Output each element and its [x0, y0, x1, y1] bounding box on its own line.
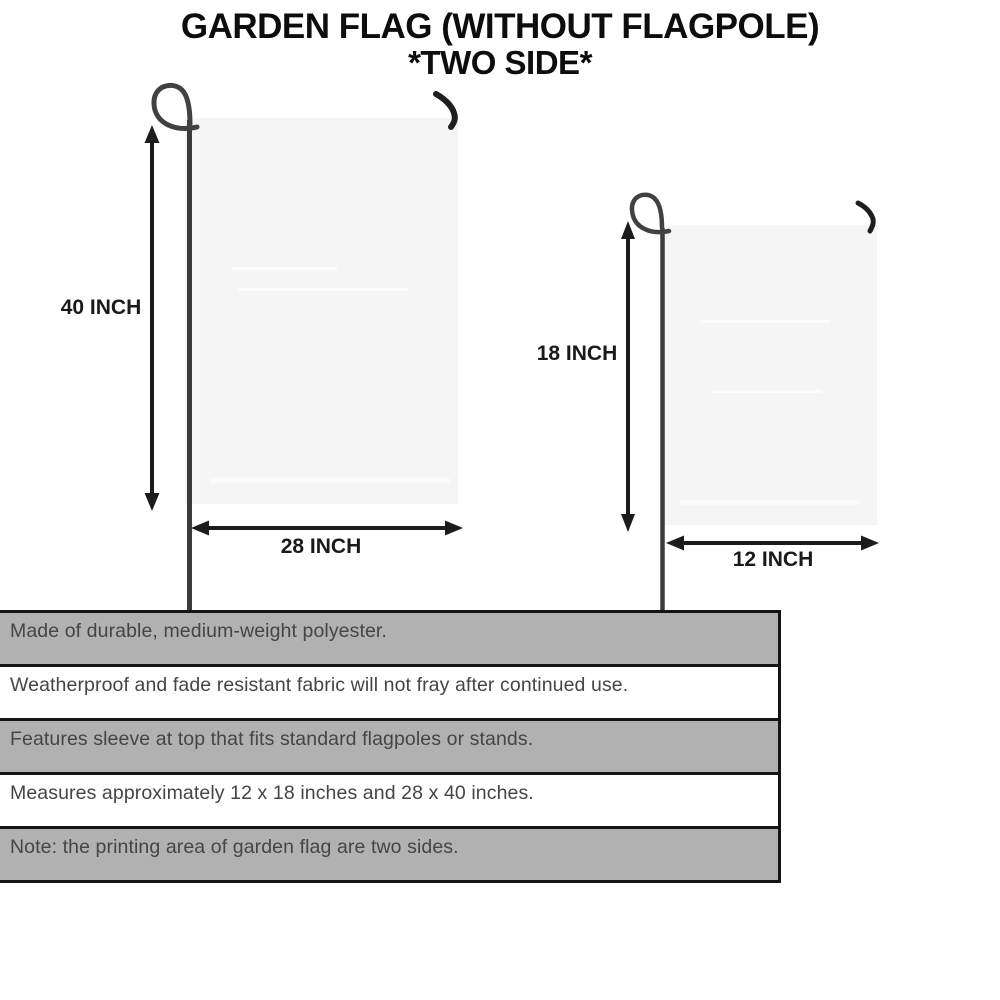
feature-row-note: Note: the printing area of garden flag a…: [0, 829, 778, 883]
feature-row-material: Made of durable, medium-weight polyester…: [0, 613, 778, 667]
fabric-streak: [210, 478, 450, 483]
arrow-left-icon: [191, 521, 209, 536]
arrow-left-icon: [666, 536, 684, 551]
feature-row-weatherproof: Weatherproof and fade resistant fabric w…: [0, 667, 778, 721]
title-line-2: *TWO SIDE*: [0, 46, 1000, 81]
feature-row-sleeve: Features sleeve at top that fits standar…: [0, 721, 778, 775]
fabric-streak: [700, 320, 830, 323]
large-flag-panel: [185, 118, 458, 504]
infographic: GARDEN FLAG (WITHOUT FLAGPOLE) *TWO SIDE…: [0, 0, 1000, 1000]
feature-text: Features sleeve at top that fits standar…: [10, 728, 533, 750]
feature-text: Weatherproof and fade resistant fabric w…: [10, 674, 628, 696]
feature-text: Measures approximately 12 x 18 inches an…: [10, 782, 534, 804]
small-flag-pole-loop-icon: [632, 195, 669, 232]
arrow-down-icon: [621, 514, 635, 532]
large-flag-group: [145, 85, 464, 610]
feature-text: Note: the printing area of garden flag a…: [10, 836, 459, 858]
title-line-1: GARDEN FLAG (WITHOUT FLAGPOLE): [0, 8, 1000, 46]
small-flag-width-label: 12 INCH: [713, 548, 833, 572]
feature-text: Made of durable, medium-weight polyester…: [10, 620, 387, 642]
small-flag-height-arrow: [621, 221, 635, 532]
large-flag-width-label: 28 INCH: [261, 535, 381, 559]
arrow-up-icon: [621, 221, 635, 239]
arrow-down-icon: [145, 493, 160, 511]
page-title: GARDEN FLAG (WITHOUT FLAGPOLE) *TWO SIDE…: [0, 8, 1000, 80]
small-flag-panel: [663, 225, 877, 525]
flag-size-diagram: [0, 0, 1000, 612]
fabric-streak: [712, 390, 822, 393]
features-table: Made of durable, medium-weight polyester…: [0, 610, 781, 883]
arrow-right-icon: [861, 536, 879, 551]
arrow-right-icon: [445, 521, 463, 536]
feature-row-measurements: Measures approximately 12 x 18 inches an…: [0, 775, 778, 829]
fabric-streak: [232, 267, 337, 270]
small-flag-height-label: 18 INCH: [528, 342, 626, 366]
fabric-streak: [238, 288, 408, 291]
large-flag-height-label: 40 INCH: [53, 296, 149, 320]
large-flag-pole-loop-icon: [154, 85, 197, 128]
arrow-up-icon: [145, 125, 160, 143]
large-flag-width-arrow: [191, 521, 463, 536]
fabric-streak: [680, 500, 860, 505]
